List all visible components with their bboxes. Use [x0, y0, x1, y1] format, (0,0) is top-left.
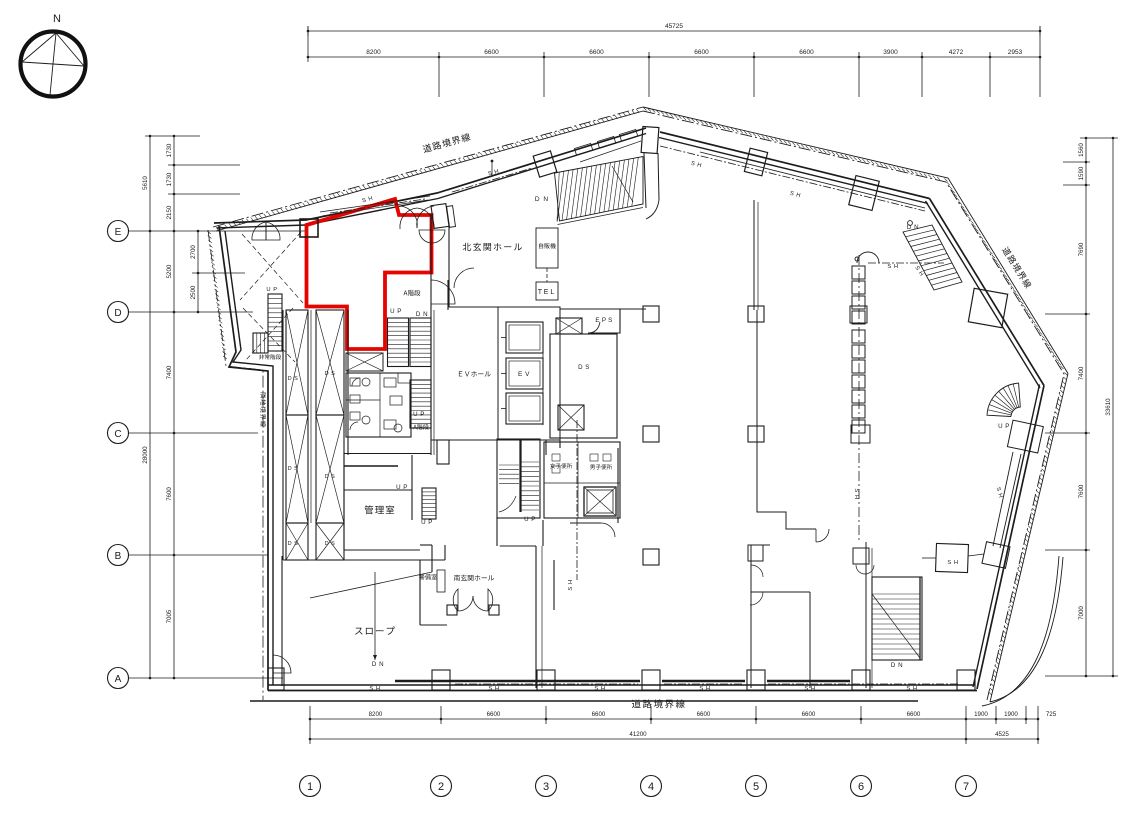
svg-text:6600: 6600 [697, 711, 711, 718]
svg-text:1560: 1560 [1078, 143, 1085, 157]
svg-text:7690: 7690 [1078, 242, 1085, 256]
svg-text:D S: D S [288, 376, 299, 382]
svg-text:U P: U P [390, 308, 402, 315]
svg-text:28000: 28000 [142, 446, 149, 464]
svg-text:S H: S H [369, 686, 380, 692]
svg-text:45725: 45725 [665, 23, 683, 30]
svg-text:T E L: T E L [538, 289, 555, 296]
svg-text:3900: 3900 [883, 49, 898, 56]
svg-text:6600: 6600 [802, 711, 816, 718]
svg-text:4272: 4272 [949, 49, 964, 56]
svg-text:33610: 33610 [1105, 398, 1112, 416]
svg-text:S H: S H [906, 686, 917, 692]
svg-text:6600: 6600 [484, 49, 499, 56]
svg-text:D N: D N [891, 662, 903, 669]
svg-text:8200: 8200 [366, 49, 381, 56]
svg-text:N: N [53, 13, 61, 25]
svg-text:7400: 7400 [1078, 366, 1085, 380]
svg-text:41200: 41200 [629, 731, 647, 738]
svg-text:S H: S H [887, 264, 898, 270]
svg-text:8200: 8200 [369, 711, 383, 718]
svg-text:D S: D S [325, 474, 336, 480]
svg-text:7600: 7600 [166, 487, 173, 501]
svg-text:1730: 1730 [166, 143, 173, 157]
svg-text:5200: 5200 [166, 264, 173, 278]
svg-text:6600: 6600 [907, 711, 921, 718]
svg-text:4: 4 [648, 781, 654, 793]
svg-text:D N: D N [372, 661, 384, 668]
svg-text:S H: S H [853, 488, 859, 499]
svg-text:2953: 2953 [1008, 49, 1023, 56]
svg-text:D S: D S [325, 541, 336, 547]
svg-text:S H: S H [947, 560, 958, 566]
svg-text:E: E [115, 227, 122, 238]
svg-text:S H: S H [594, 686, 605, 692]
svg-text:5610: 5610 [142, 176, 149, 190]
svg-text:U P: U P [266, 287, 277, 293]
svg-text:U P: U P [396, 484, 408, 491]
svg-text:6600: 6600 [592, 711, 606, 718]
svg-text:U P: U P [524, 516, 536, 523]
svg-text:6600: 6600 [487, 711, 501, 718]
svg-text:D: D [114, 308, 121, 319]
svg-text:1: 1 [307, 781, 313, 793]
svg-text:U P: U P [413, 411, 425, 418]
svg-text:725: 725 [1046, 711, 1057, 718]
svg-text:U P: U P [421, 519, 433, 526]
svg-text:2: 2 [438, 781, 444, 793]
svg-text:1900: 1900 [1004, 711, 1018, 718]
svg-text:2500: 2500 [190, 285, 197, 299]
svg-text:6600: 6600 [589, 49, 604, 56]
svg-text:6600: 6600 [694, 49, 709, 56]
svg-text:S H: S H [699, 686, 710, 692]
svg-text:E P S: E P S [595, 317, 612, 324]
svg-text:E V: E V [518, 371, 530, 378]
svg-text:6600: 6600 [799, 49, 814, 56]
svg-text:7: 7 [963, 781, 969, 793]
svg-text:2150: 2150 [166, 205, 173, 219]
svg-text:7600: 7600 [1078, 484, 1085, 498]
svg-text:D N: D N [535, 196, 549, 203]
svg-text:C: C [114, 429, 121, 440]
svg-text:A: A [115, 674, 122, 685]
svg-text:1590: 1590 [1078, 166, 1085, 180]
svg-text:B: B [115, 551, 122, 562]
svg-text:3: 3 [543, 781, 549, 793]
svg-text:5: 5 [753, 781, 759, 793]
svg-text:U P: U P [998, 423, 1010, 430]
svg-text:S H: S H [488, 686, 499, 692]
svg-text:2700: 2700 [190, 245, 197, 259]
svg-text:7400: 7400 [166, 365, 173, 379]
svg-text:S H: S H [568, 579, 574, 590]
svg-text:D S: D S [578, 364, 590, 371]
svg-text:1900: 1900 [974, 711, 988, 718]
svg-text:4525: 4525 [995, 731, 1009, 738]
svg-text:D S: D S [288, 541, 299, 547]
svg-text:7000: 7000 [1078, 606, 1085, 620]
svg-text:D S: D S [325, 371, 336, 377]
svg-text:7005: 7005 [166, 609, 173, 623]
svg-text:D S: D S [288, 466, 299, 472]
svg-text:6: 6 [858, 781, 864, 793]
svg-text:D N: D N [416, 311, 428, 318]
svg-text:1730: 1730 [166, 172, 173, 186]
